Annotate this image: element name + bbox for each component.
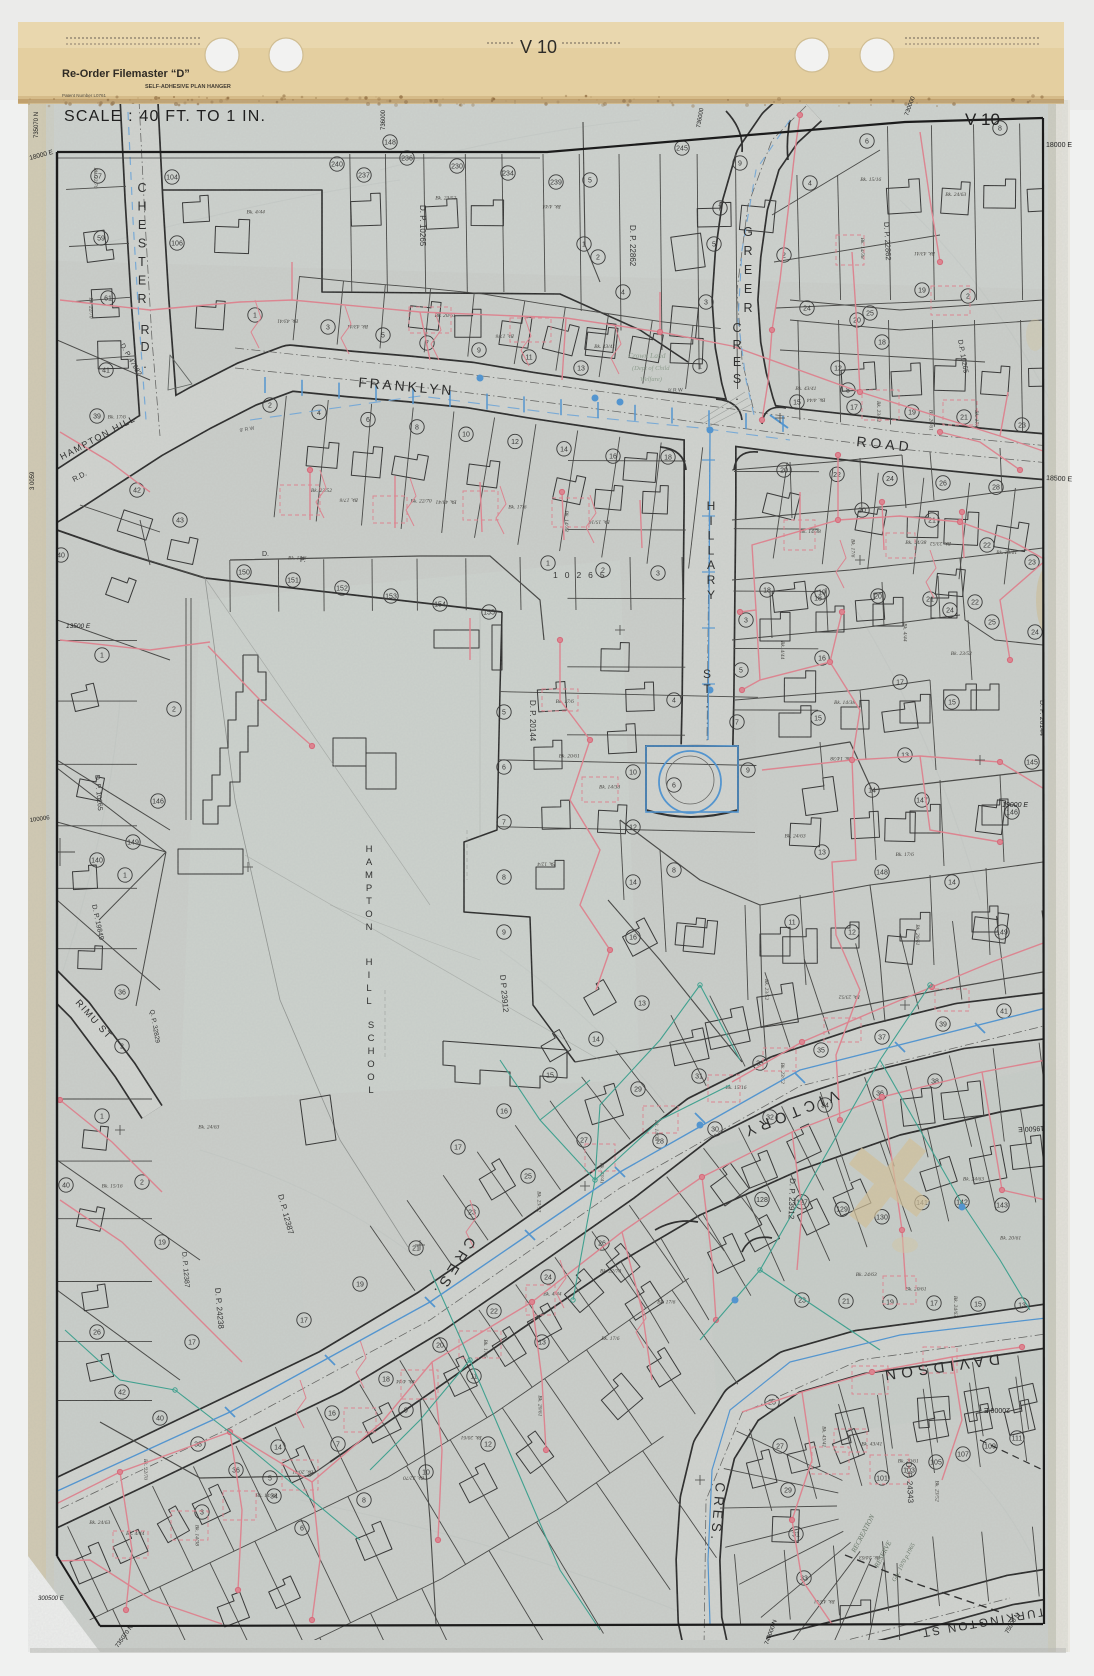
svg-text:735070 N: 735070 N bbox=[34, 112, 40, 138]
svg-text:300500 E: 300500 E bbox=[38, 1596, 65, 1602]
svg-text:3 0059: 3 0059 bbox=[30, 471, 36, 490]
svg-text:13500 E: 13500 E bbox=[66, 623, 91, 630]
svg-text:Patent Number L0761: Patent Number L0761 bbox=[62, 93, 107, 98]
svg-text:736000: 736000 bbox=[381, 109, 387, 130]
svg-text:20000 E: 20000 E bbox=[984, 1406, 1010, 1413]
svg-text:SELF-ADHESIVE PLAN HANGER: SELF-ADHESIVE PLAN HANGER bbox=[145, 84, 231, 90]
svg-text:19500 E: 19500 E bbox=[1018, 1124, 1045, 1132]
svg-text:V 10: V 10 bbox=[520, 37, 557, 57]
svg-text:18500 E: 18500 E bbox=[1046, 475, 1073, 483]
svg-text:Re-Order Filemaster “D”: Re-Order Filemaster “D” bbox=[62, 68, 190, 80]
svg-text:19000 E: 19000 E bbox=[1002, 802, 1028, 809]
svg-text:SCALE : 40 FT. TO 1 IN.: SCALE : 40 FT. TO 1 IN. bbox=[64, 108, 266, 125]
svg-text:18000 E: 18000 E bbox=[1046, 142, 1072, 149]
svg-text:V 10: V 10 bbox=[965, 110, 1000, 129]
